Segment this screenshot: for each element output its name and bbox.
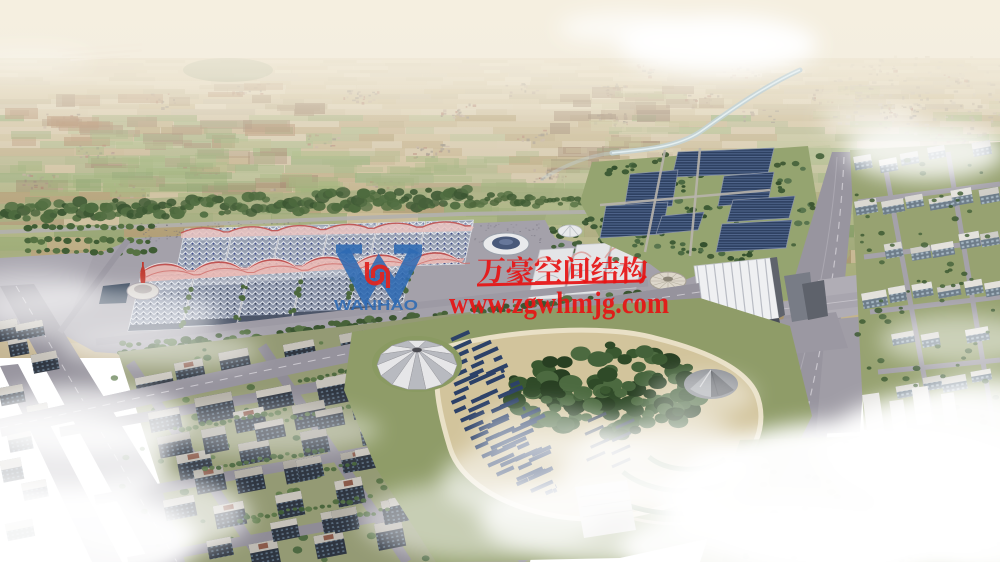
svg-text:WANHAO: WANHAO <box>334 297 418 314</box>
svg-text:www.zgwhmjg.com: www.zgwhmjg.com <box>449 285 669 320</box>
